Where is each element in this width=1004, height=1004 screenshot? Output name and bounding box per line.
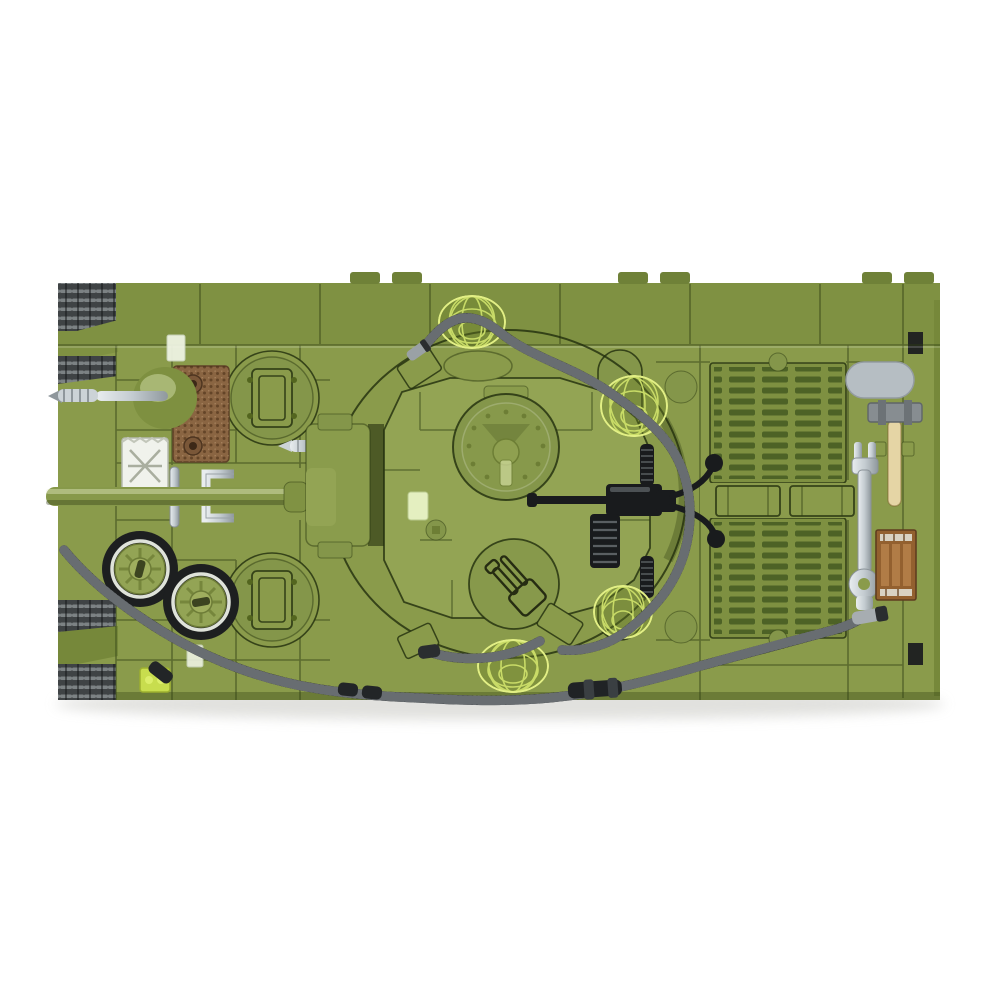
fender-oval [846, 362, 914, 398]
porthole-hatch-rear [225, 553, 319, 647]
deck-stud [665, 611, 697, 643]
rear-clip [908, 332, 923, 354]
auger [48, 389, 168, 403]
cupola [444, 351, 512, 381]
rear-clip [908, 643, 923, 665]
trans-brick [167, 335, 185, 361]
commander-hatch [453, 394, 559, 500]
spare-wheel [163, 564, 239, 640]
mantlet [306, 414, 384, 558]
jerry-can [122, 438, 168, 490]
porthole-hatch-front [225, 351, 319, 445]
deck-stud [665, 371, 697, 403]
crate-tile [876, 530, 916, 600]
product-photo [0, 0, 1004, 1004]
turret-trans-light [408, 492, 428, 520]
tank-model-illustration [0, 0, 1004, 1004]
top-edge-tabs [350, 272, 934, 284]
engine-grilles [700, 353, 856, 648]
